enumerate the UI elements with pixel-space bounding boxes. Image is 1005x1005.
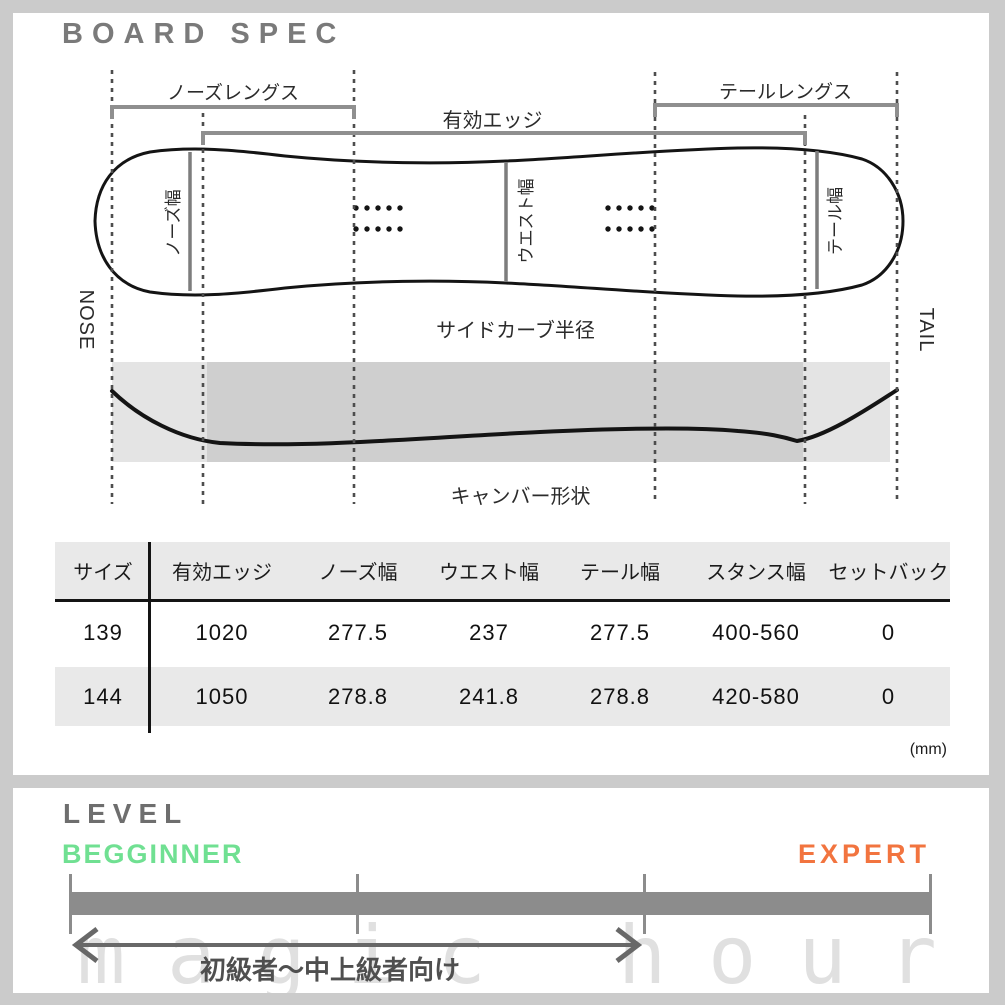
table-cell: 237 [423, 602, 555, 664]
table-cell: 277.5 [555, 602, 685, 664]
nose-end-label: NOSE [56, 292, 116, 348]
beginner-label: BEGGINNER [62, 839, 244, 870]
camber-shape-label: キャンバー形状 [368, 480, 673, 509]
table-cell: 139 [55, 602, 151, 664]
nose-width-label: ノーズ幅 [111, 163, 231, 283]
col-header-waist-width: ウエスト幅 [423, 542, 555, 602]
table-cell: 277.5 [293, 602, 423, 664]
tail-width-label: テール幅 [773, 161, 893, 281]
table-divider-line [148, 542, 151, 733]
table-cell: 241.8 [423, 664, 555, 726]
waist-width-label: ウエスト幅 [464, 161, 584, 281]
col-header-size: サイズ [55, 542, 151, 602]
table-cell: 144 [55, 664, 151, 726]
expert-label: EXPERT [698, 839, 930, 870]
col-header-nose-width: ノーズ幅 [293, 542, 423, 602]
col-header-tail-width: テール幅 [555, 542, 685, 602]
table-cell: 400-560 [685, 602, 827, 664]
nose-length-label: ノーズレングス [133, 78, 333, 105]
table-cell: 1050 [151, 664, 293, 726]
level-scale-bar [70, 892, 932, 915]
col-header-effective-edge: 有効エッジ [151, 542, 293, 602]
tail-length-label: テールレングス [683, 77, 888, 104]
level-title: LEVEL [63, 798, 188, 830]
table-cell: 0 [827, 664, 950, 726]
spec-table: サイズ 有効エッジ ノーズ幅 ウエスト幅 テール幅 スタンス幅 セットバック 1… [55, 542, 950, 726]
table-cell: 1020 [151, 602, 293, 664]
table-cell: 278.8 [555, 664, 685, 726]
skill-range-label: 初級者～中上級者向け [180, 950, 480, 987]
table-row-139: 139 1020 277.5 237 277.5 400-560 0 [55, 602, 950, 664]
sidecut-radius-label: サイドカーブ半径 [363, 314, 668, 343]
table-cell: 420-580 [685, 664, 827, 726]
table-header-row: サイズ 有効エッジ ノーズ幅 ウエスト幅 テール幅 スタンス幅 セットバック [55, 542, 950, 602]
table-row-144: 144 1050 278.8 241.8 278.8 420-580 0 [55, 664, 950, 726]
table-cell: 278.8 [293, 664, 423, 726]
effective-edge-label: 有効エッジ [390, 104, 595, 133]
col-header-stance-width: スタンス幅 [685, 542, 827, 602]
camber-band [112, 362, 890, 462]
level-panel: magic hour LEVEL BEGGINNER EXPERT 初級者～中上… [13, 788, 989, 993]
table-cell: 0 [827, 602, 950, 664]
unit-note: (mm) [855, 741, 947, 759]
col-header-setback: セットバック [827, 542, 950, 602]
tail-end-label: TAIL [896, 302, 956, 358]
